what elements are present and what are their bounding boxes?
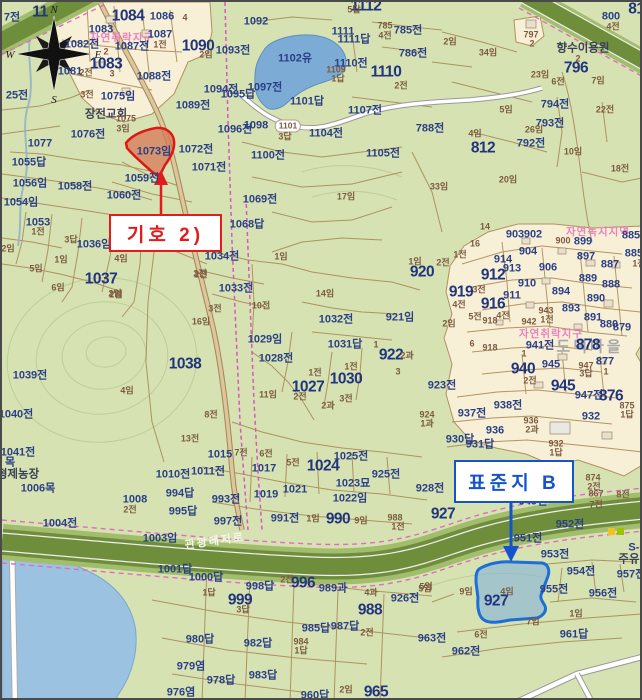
compass-s: S (51, 94, 57, 106)
symbol2-callout: 기호 2) (109, 214, 222, 252)
highlight-parcel-blue (476, 562, 549, 623)
stream (18, 28, 32, 246)
compass-w: W (5, 49, 15, 61)
map-graphics: N S W E (2, 2, 642, 700)
compass-e: E (94, 49, 102, 61)
compass-n: N (49, 4, 58, 16)
lake (2, 548, 136, 700)
cadastral-map: N S W E 117전1084108641083자연취락지구1082전1087… (0, 0, 642, 700)
red-callout-arrow (154, 170, 168, 214)
pond (255, 35, 346, 109)
standard-lot-b-callout: 표준지 B (454, 460, 574, 503)
